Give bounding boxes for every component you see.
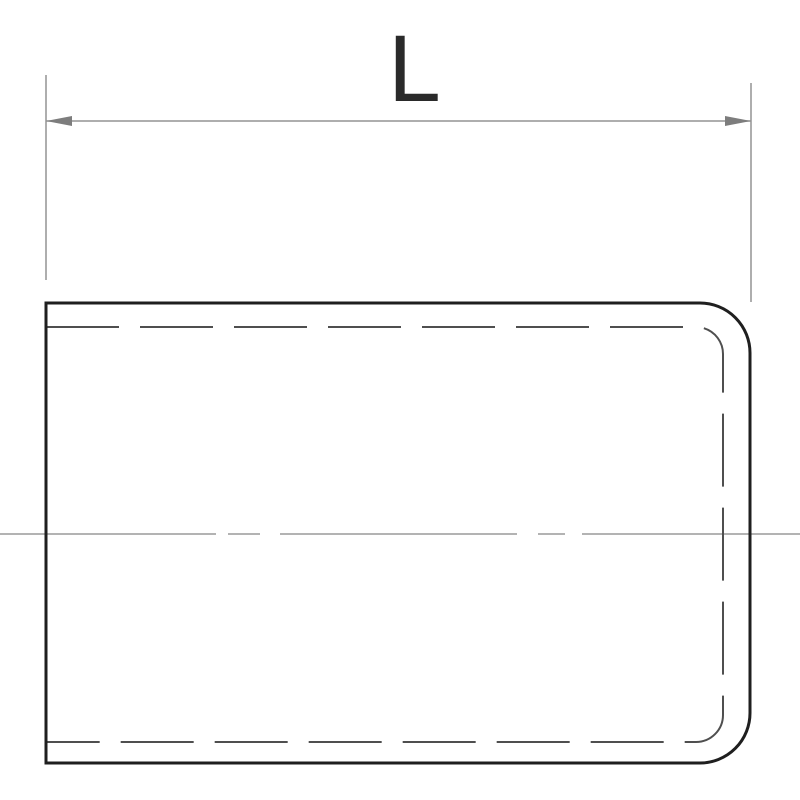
drawing-page: L: [0, 0, 800, 800]
technical-drawing-canvas: L: [0, 0, 800, 800]
dimension-arrow-right-icon: [725, 116, 751, 126]
part-outer-outline: [46, 303, 750, 763]
dimension-arrow-left-icon: [46, 116, 72, 126]
dimension-label: L: [388, 16, 441, 122]
